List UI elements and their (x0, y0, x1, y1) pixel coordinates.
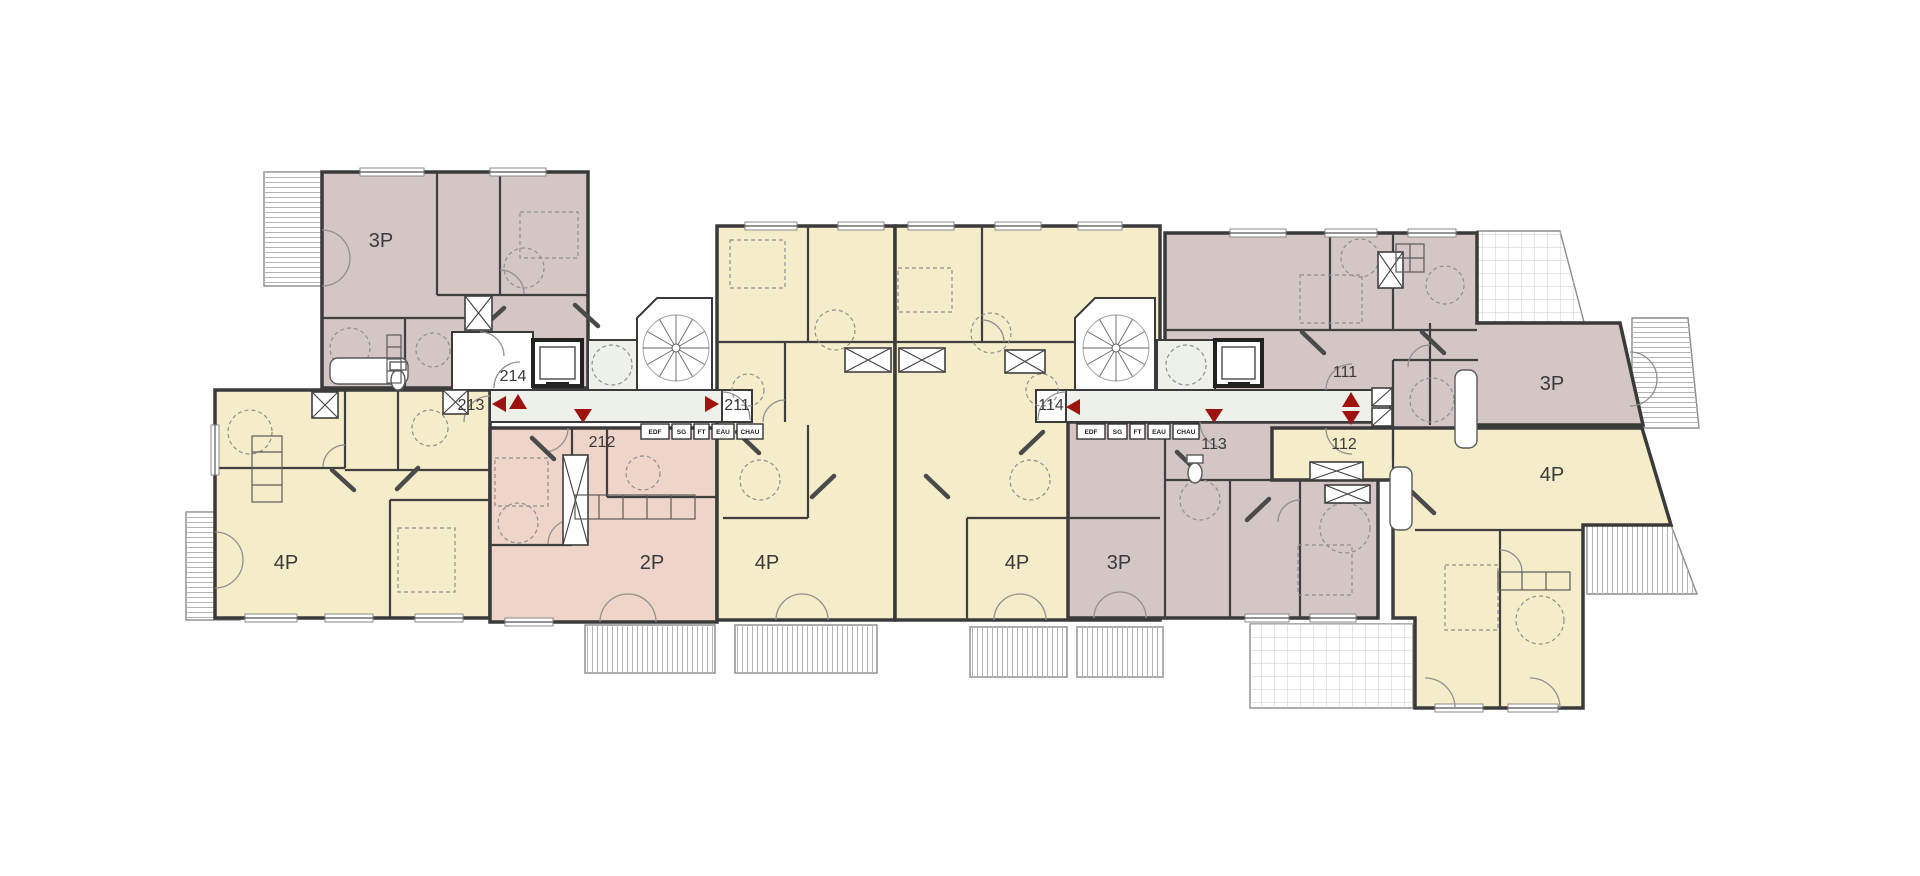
utility-label: SG (1113, 429, 1122, 436)
toilet-113-bowl (1188, 463, 1202, 483)
balcony-unit-114-hatch (970, 627, 1067, 677)
bathtub-111 (1455, 370, 1477, 448)
terrace-bottom-right-tiles (1250, 624, 1413, 708)
utility-strip-east: EDF SG FT EAU CHAU (1077, 424, 1199, 439)
balcony-unit-212-hatch (585, 625, 715, 673)
utility-label: EDF (1085, 429, 1098, 436)
bathtub-112 (1390, 467, 1412, 530)
unit-214-type-label: 3P (369, 230, 393, 252)
unit-214-number: 214 (500, 368, 527, 385)
balcony-unit-214-hatch (264, 172, 322, 286)
utility-label: FT (1134, 429, 1142, 436)
unit-211-number: 211 (724, 397, 750, 414)
unit-112-type-label: 4P (1540, 464, 1564, 486)
unit-113-number: 113 (1201, 436, 1227, 453)
unit-213-area (215, 390, 490, 618)
unit-areas (215, 172, 1671, 708)
balcony-unit-113-hatch (1077, 627, 1163, 677)
utility-label: FT (698, 429, 706, 436)
utility-label: EDF (649, 429, 662, 436)
utility-label: CHAU (741, 429, 760, 436)
unit-114-number: 114 (1038, 397, 1064, 414)
toilet-113-tank (1187, 455, 1203, 463)
unit-113-type-label: 3P (1107, 552, 1131, 574)
utility-strip-west: EDF SG FT EAU CHAU (641, 424, 763, 439)
unit-212-type-label: 2P (640, 552, 664, 574)
unit-212-number: 212 (589, 434, 616, 451)
unit-212-area (490, 428, 717, 622)
terrace-top-right-tiles (1477, 231, 1584, 322)
toilet-214-tank (390, 362, 406, 370)
utility-label: CHAU (1177, 429, 1196, 436)
unit-111-type-label: 3P (1540, 373, 1564, 395)
floor-plan-page: EDF SG FT EAU CHAU EDF SG FT EAU CHAU 3P… (0, 0, 1920, 876)
unit-211-type-label: 4P (755, 552, 779, 574)
unit-213-number: 213 (458, 397, 485, 414)
utility-label: SG (677, 429, 686, 436)
balcony-unit-211-hatch (735, 625, 877, 673)
spiral-stair-west-hub (672, 344, 680, 352)
balcony-unit-111-hatch (1632, 318, 1699, 428)
unit-111-number: 111 (1333, 364, 1357, 381)
unit-114-type-label: 4P (1005, 552, 1029, 574)
utility-label: EAU (1152, 429, 1166, 436)
unit-112-number: 112 (1331, 436, 1357, 453)
unit-213-type-label: 4P (274, 552, 298, 574)
utility-label: EAU (716, 429, 730, 436)
corridor-east (1062, 390, 1390, 422)
balcony-unit-112-hatch (1587, 525, 1697, 594)
floor-plan-svg: EDF SG FT EAU CHAU EDF SG FT EAU CHAU 3P… (0, 0, 1920, 876)
spiral-stair-east-hub (1112, 344, 1120, 352)
lobby-niche-west (588, 340, 637, 390)
toilet-214-bowl (391, 370, 405, 390)
